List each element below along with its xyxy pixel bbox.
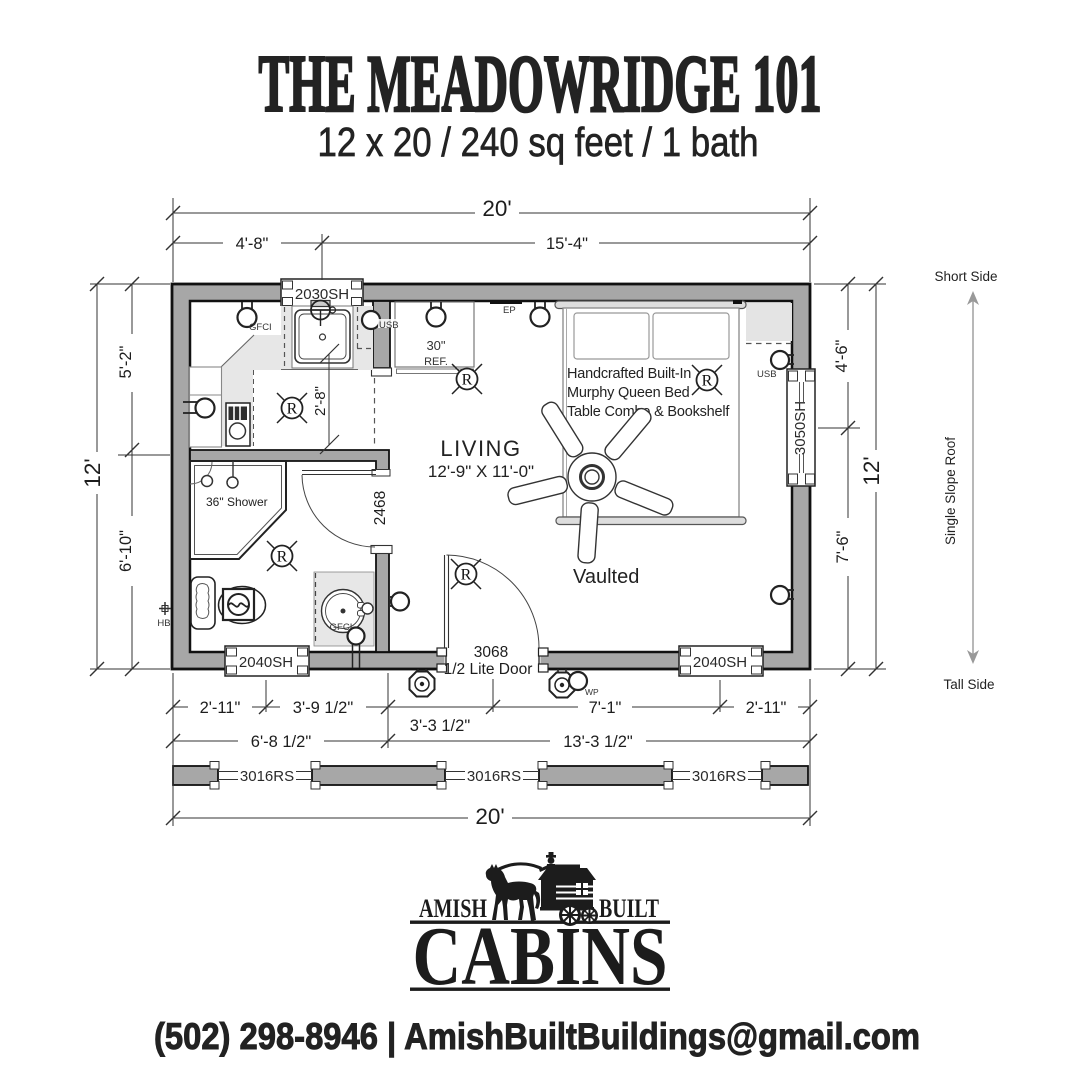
svg-text:3'-9 1/2": 3'-9 1/2" xyxy=(293,699,354,717)
svg-text:2040SH: 2040SH xyxy=(239,654,293,671)
svg-text:LIVING: LIVING xyxy=(440,436,521,461)
svg-text:3016RS: 3016RS xyxy=(240,768,294,785)
svg-text:12 x 20 / 240 sq feet / 1 bath: 12 x 20 / 240 sq feet / 1 bath xyxy=(318,119,759,165)
svg-text:3016RS: 3016RS xyxy=(692,768,746,785)
svg-text:THE MEADOWRIDGE 101: THE MEADOWRIDGE 101 xyxy=(259,38,822,129)
svg-text:EP: EP xyxy=(503,305,516,316)
svg-text:5'-2": 5'-2" xyxy=(117,345,135,378)
svg-text:3068: 3068 xyxy=(474,644,508,661)
svg-text:Handcrafted Built-In: Handcrafted Built-In xyxy=(567,366,691,382)
svg-text:WP: WP xyxy=(585,687,599,697)
svg-text:2'-11": 2'-11" xyxy=(200,699,241,717)
svg-text:HB: HB xyxy=(157,618,170,629)
svg-text:30": 30" xyxy=(426,338,445,353)
svg-text:GFCI: GFCI xyxy=(249,322,272,333)
svg-text:Tall Side: Tall Side xyxy=(943,677,994,692)
svg-text:12': 12' xyxy=(80,458,105,487)
svg-text:2040SH: 2040SH xyxy=(693,654,747,671)
svg-text:6'-10": 6'-10" xyxy=(117,530,135,572)
svg-text:12': 12' xyxy=(859,456,884,485)
svg-text:REF.: REF. xyxy=(424,356,448,368)
svg-text:7'-1": 7'-1" xyxy=(589,699,622,717)
svg-text:2468: 2468 xyxy=(372,491,389,525)
svg-text:12'-9" X 11'-0": 12'-9" X 11'-0" xyxy=(428,462,534,481)
svg-text:4'-8": 4'-8" xyxy=(236,235,269,253)
svg-text:20': 20' xyxy=(482,196,511,221)
svg-text:Single Slope Roof: Single Slope Roof xyxy=(943,437,958,545)
svg-text:USB: USB xyxy=(379,320,399,331)
svg-text:15'-4": 15'-4" xyxy=(546,235,588,253)
svg-text:Vaulted: Vaulted xyxy=(573,566,639,588)
svg-text:1/2 Lite Door: 1/2 Lite Door xyxy=(444,661,533,678)
svg-text:2'-8": 2'-8" xyxy=(312,386,329,416)
svg-text:36" Shower: 36" Shower xyxy=(206,495,268,509)
svg-text:2'-11": 2'-11" xyxy=(746,699,787,717)
svg-text:Short Side: Short Side xyxy=(934,269,997,284)
svg-text:3'-3 1/2": 3'-3 1/2" xyxy=(410,717,471,735)
svg-text:13'-3 1/2": 13'-3 1/2" xyxy=(563,733,633,751)
svg-text:Murphy Queen Bed: Murphy Queen Bed xyxy=(567,385,690,401)
svg-text:4'-6": 4'-6" xyxy=(833,339,851,372)
svg-text:6'-8 1/2": 6'-8 1/2" xyxy=(251,733,312,751)
svg-text:7'-6": 7'-6" xyxy=(834,530,852,563)
svg-text:20': 20' xyxy=(475,804,504,829)
svg-text:3050SH: 3050SH xyxy=(792,401,809,455)
svg-text:3016RS: 3016RS xyxy=(467,768,521,785)
svg-text:USB: USB xyxy=(757,369,777,380)
svg-text:(502) 298-8946 | AmishBuiltBui: (502) 298-8946 | AmishBuiltBuildings@gma… xyxy=(154,1016,920,1058)
